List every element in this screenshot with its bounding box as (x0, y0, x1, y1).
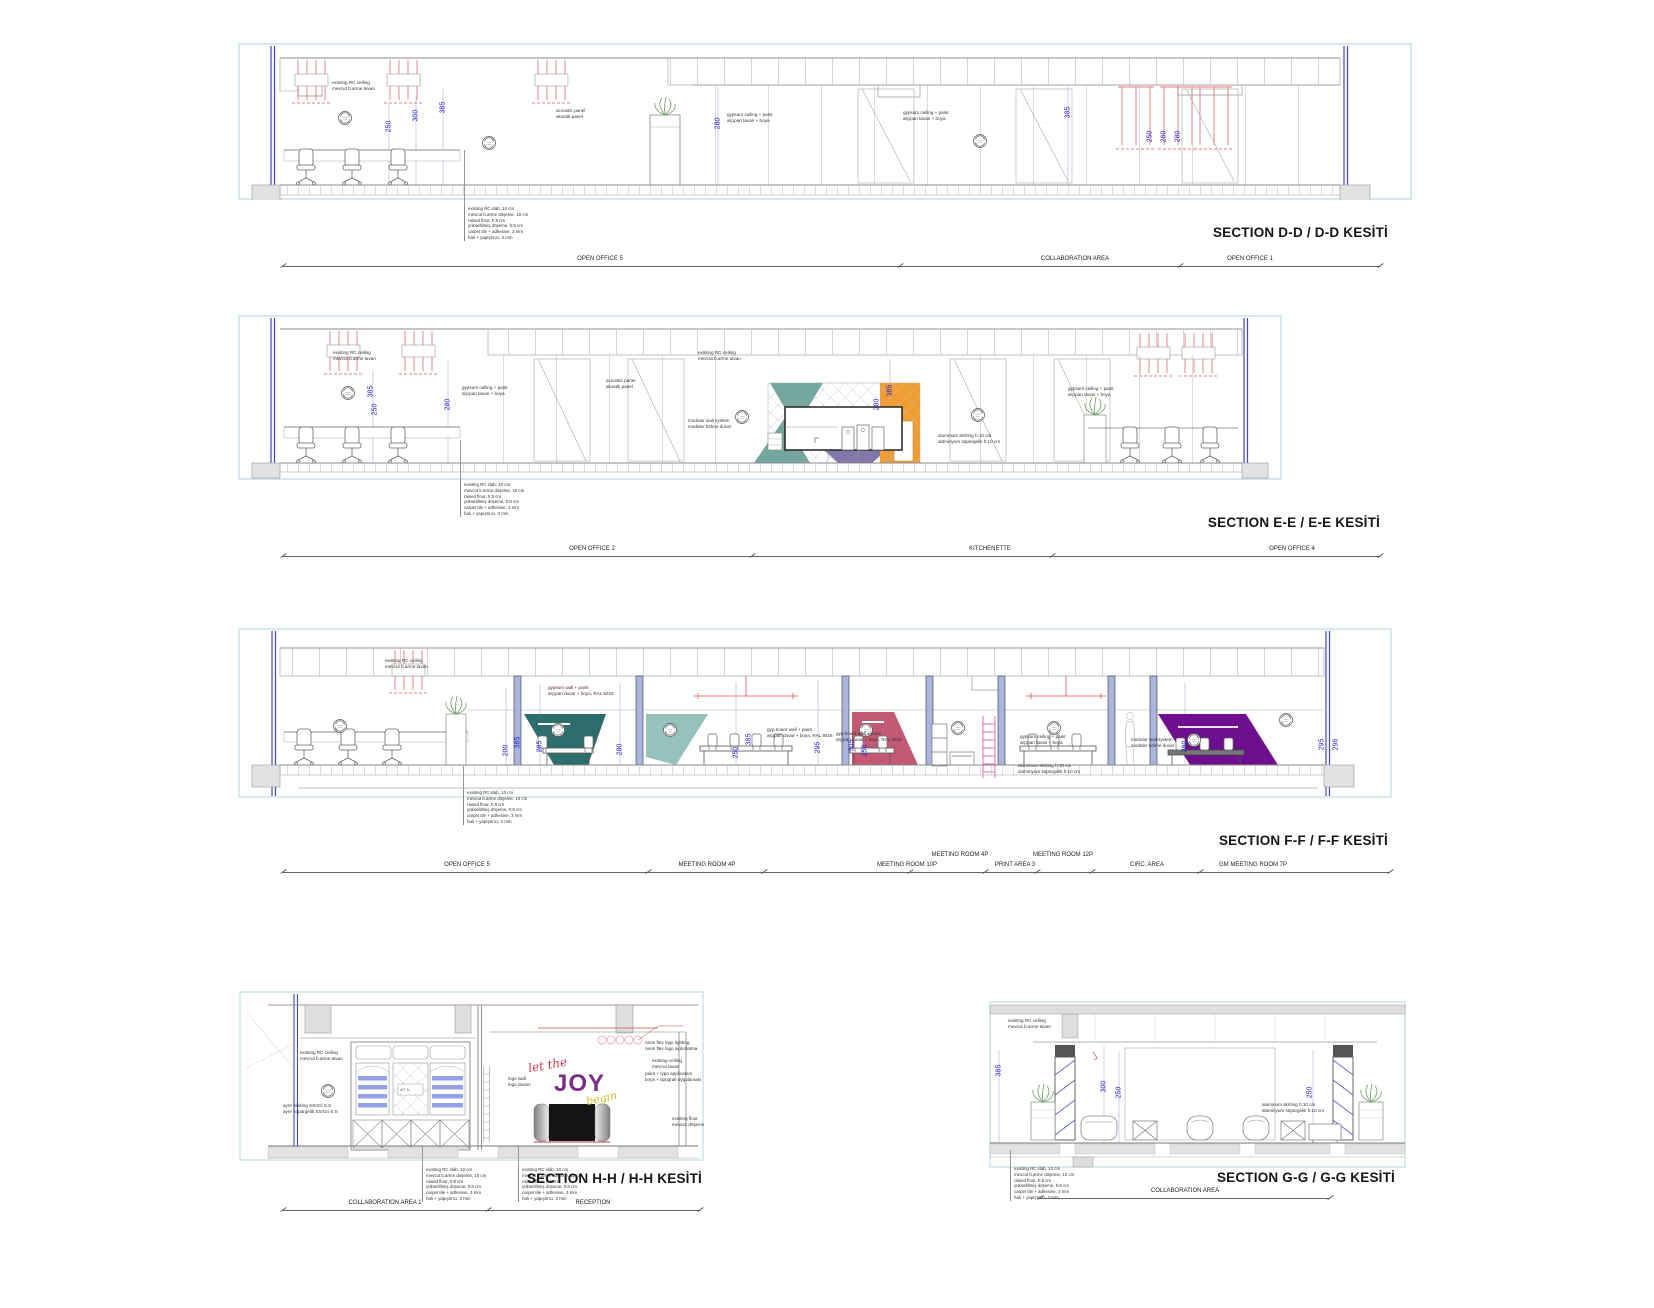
floor-buildup-note: existing RC slab, 10 cmmevcut b.arme döş… (464, 206, 528, 241)
plant-icon (1361, 1084, 1381, 1102)
wall-ladder-detail (484, 1066, 490, 1142)
shelving-wall (351, 1042, 470, 1150)
pendant-light-icon (292, 60, 331, 103)
ladder-feature (1055, 1045, 1075, 1140)
room-label: COLLABORATION AREA (1041, 256, 1109, 262)
suspended-light-icon (693, 676, 1106, 699)
room-label: OPEN OFFICE 5 (444, 862, 490, 868)
floor-hatch (280, 185, 1340, 195)
room-label: OPEN OFFICE 5 (577, 256, 623, 262)
office-chair-icon (389, 149, 408, 185)
dimension-value: 280 (445, 396, 452, 414)
floor-buildup-note: existing RC slab, 10 cmmevcut b.arme döş… (463, 790, 527, 825)
room-label: MEETING ROOM 10P (877, 862, 937, 868)
floor-buildup-note: existing RC slab, 10 cmmevcut b.arme döş… (422, 1167, 486, 1202)
office-chair-icon (297, 149, 316, 185)
finish-tag-icon (334, 720, 347, 733)
foundation-band (268, 1147, 678, 1158)
room-label: CIRC. AREA (1130, 862, 1164, 868)
x-stool-icon (1281, 1121, 1305, 1140)
dimension-value: 300 (413, 107, 420, 125)
dimension-value: 296 (1333, 736, 1340, 754)
office-chair-icon (297, 427, 316, 463)
section-gg-title: SECTION G-G / G-G KESİTİ (1217, 1170, 1395, 1185)
room-label: OPEN OFFICE 4 (1269, 546, 1315, 552)
office-chair-icon (295, 729, 314, 765)
dimension-value: 200 (503, 742, 510, 760)
finish-tag-icon (342, 387, 355, 400)
dimension-value: 385 (515, 734, 522, 752)
section-ee-title: SECTION E-E / E-E KESİTİ (1208, 515, 1380, 530)
room-dimension-line (283, 266, 1380, 267)
architectural-sections-sheet: existing RC ceilingmevcut b.arme tavan a… (0, 0, 1654, 1308)
section-dd-title: SECTION D-D / D-D KESİTİ (1213, 225, 1388, 240)
annotation-gypsum-ceiling: gypsum ceiling + paintalçıpan tavan + bo… (903, 110, 949, 122)
annotation-acoustic-panel: acoustic panelakustik panel (556, 108, 585, 120)
dimension-value: 385 (996, 1062, 1003, 1080)
annotation-modular-wall: modular wall systemmodüler bölme duvar (1131, 737, 1174, 749)
room-label: KITCHENETTE (969, 546, 1011, 552)
finish-tag-icon (1188, 734, 1201, 747)
dimension-value: 385 (1065, 104, 1072, 122)
foundation-band (990, 1144, 1405, 1154)
annotation-wall-paint-white: gyp.board wall + paintalçıpan duvar + bo… (767, 727, 833, 739)
plant-icon (446, 696, 466, 714)
dimension-value: 250 (1307, 1084, 1314, 1102)
dimension-value: 250 (1147, 128, 1154, 146)
wall-panels (488, 355, 728, 463)
finish-tag-icon (1280, 714, 1293, 727)
floor-buildup-note: existing RC slab, 10 cmmevcut b.arme döş… (460, 482, 524, 517)
annotation-gypsum-ceiling: gypsum ceiling + paintalçıpan tavan + bo… (462, 385, 508, 397)
room-dimension-line (283, 1210, 700, 1211)
section-hh-title: SECTION H-H / H-H KESİTİ (527, 1171, 702, 1186)
section-ff-title: SECTION F-F / F-F KESİTİ (1219, 833, 1388, 848)
pendant-light-icon (399, 331, 438, 374)
dimension-value: 250 (386, 118, 393, 136)
annotation-wall-paint-teal: gypsum wall + paintalçıpan duvar + boya,… (548, 685, 614, 697)
office-chair-icon (389, 427, 408, 463)
annotation-existing-rc-ceiling: existing RC ceilingmevcut b.arme tavan (385, 658, 428, 670)
annotation-existing-floor: existing floormevcut döşeme (672, 1116, 704, 1128)
finish-tag-icon (974, 135, 987, 148)
plant-icon (655, 97, 675, 115)
dimension-value: 385 (440, 99, 447, 117)
office-chair-icon (343, 427, 362, 463)
office-chair-icon (383, 729, 402, 765)
annotation-existing-ceiling: existing ceilingmevcut tavan (652, 1058, 682, 1070)
finish-tag-icon (972, 409, 985, 422)
room-label: MEETING ROOM 12P (1033, 852, 1093, 858)
gm-conference-table (1168, 750, 1244, 755)
annotation-aluminum-skirting: aluminum skirting h:10 cmalüminyum süpür… (1018, 763, 1080, 775)
room-dimension-line (283, 556, 1380, 557)
finish-tag-icon (322, 1085, 335, 1098)
dimension-value: 280 (617, 741, 624, 759)
dimension-value: 385 (887, 382, 894, 400)
annotation-existing-rc-ceiling: existing RC ceilingmevcut b.arme tavan (300, 1050, 343, 1062)
room-label: COLLABORATION AREA (1151, 1188, 1219, 1194)
section-hh-drawing (238, 948, 708, 1180)
room-dimension-line (283, 872, 1390, 873)
annotation-aluminum-skirting: aluminum skirting h:10 cmalüminyum süpür… (938, 433, 1000, 445)
finish-tag-icon (664, 724, 677, 737)
office-chair-icon (343, 149, 362, 185)
dimension-value: 385 (746, 731, 753, 749)
room-label: RECEPTION (575, 1200, 610, 1206)
room-label: MEETING ROOM 4P (679, 862, 736, 868)
plant-icon (1033, 1084, 1053, 1102)
annotation-neon: neon flex logo lightingneon flex logo ay… (645, 1040, 697, 1052)
pendant-light-icon (384, 60, 423, 103)
dimension-value: 280 (1182, 738, 1189, 756)
dimension-value: 280 (1175, 128, 1182, 146)
dimension-value: 305 (849, 737, 856, 755)
concrete-beam (305, 1005, 633, 1033)
x-stool-icon (1133, 1121, 1157, 1140)
wall-panels (693, 85, 1340, 185)
feature-wall-teal-light (646, 714, 708, 765)
annotation-typo-wall: paint + typo applicationboya + tipografi… (645, 1071, 701, 1083)
room-dimension-line (1040, 1198, 1330, 1199)
dimension-value: 250 (1116, 1084, 1123, 1102)
dimension-value: 280 (874, 396, 881, 414)
dimension-value: 295 (815, 739, 822, 757)
annotation-acoustic-panel: acoustic panelakustik panel (606, 378, 635, 390)
finish-tag-icon (952, 722, 965, 735)
finish-tag-icon (1048, 722, 1061, 735)
room-label: MEETING ROOM 4P (932, 852, 989, 858)
annotation-existing-rc-ceiling: existing RC ceilingmevcut b.arme tavan (332, 80, 375, 92)
room-label: PRINT AREA 3 (995, 862, 1035, 868)
annotation-wall-paint-white: gyp.board wall + paintalçıpan duvar + bo… (836, 731, 902, 743)
annotation-existing-rc-ceiling: existing RC ceilingmevcut b.arme tavan (333, 350, 376, 362)
room-label: COLLABORATION AREA 1 (349, 1200, 422, 1206)
ceiling-panels (668, 58, 1340, 85)
floor-hatch (280, 463, 1242, 472)
room-label: OPEN OFFICE 1 (1227, 256, 1273, 262)
finish-tag-icon (736, 411, 749, 424)
annotation-aluminum-skirting: aluminum skirting h:10 cmalüminyum süpür… (1262, 1102, 1324, 1114)
finish-tag-icon (339, 112, 352, 125)
dimension-value: 300 (1101, 1078, 1108, 1096)
structure-gridline-icon (294, 994, 298, 1158)
section-ee-drawing (238, 315, 1282, 480)
dimension-value: 280 (715, 115, 722, 133)
annotation-existing-rc-ceiling: existing RC ceilingmevcut b.arme tavan (1008, 1018, 1051, 1030)
dimension-value: 260 (1161, 128, 1168, 146)
finish-tag-icon (483, 137, 496, 150)
finish-tag-icon (552, 724, 565, 737)
annotation-gypsum-ceiling: gypsum ceiling + paintalçıpan tavan + bo… (727, 112, 773, 124)
office-chair-icon (339, 729, 358, 765)
dimension-value: 250 (862, 742, 869, 760)
section-ff-drawing (238, 628, 1392, 800)
dimension-value: 295 (537, 738, 544, 756)
pendant-light-icon (532, 60, 571, 103)
annotation-modular-wall: modular wall systemmodüler bölme duvar (688, 418, 731, 430)
planter-pedestal (650, 115, 680, 185)
annotation-gypsum-ceiling: gypsum ceiling + paintalçıpan tavan + bo… (1020, 734, 1066, 746)
dimension-value: 295 (1319, 736, 1326, 754)
dimension-value: 385 (368, 383, 375, 401)
annotation-skirting-ss: ayre skirting SS/Gri S.Sayre süpürgelik … (283, 1103, 338, 1115)
dimension-value: 250 (372, 401, 379, 419)
roof-slab (990, 1005, 1405, 1014)
annotation-logo-wall: logo walllogo duvarı (508, 1076, 531, 1088)
floor-hatch (280, 765, 1324, 775)
annotation-existing-rc-ceiling: existing RC ceilingmevcut b.arme tavan (698, 350, 741, 362)
tv-label: 40" tv (400, 1087, 410, 1092)
room-label: GM MEETING ROOM 7P (1219, 862, 1287, 868)
neon-circle-lights-icon (598, 1036, 642, 1044)
annotation-gypsum-ceiling: gypsum ceiling + paintalçıpan tavan + bo… (1068, 386, 1114, 398)
reception-desk (534, 1104, 610, 1142)
room-label: OPEN OFFICE 2 (569, 546, 615, 552)
dimension-value: 250 (733, 744, 740, 762)
